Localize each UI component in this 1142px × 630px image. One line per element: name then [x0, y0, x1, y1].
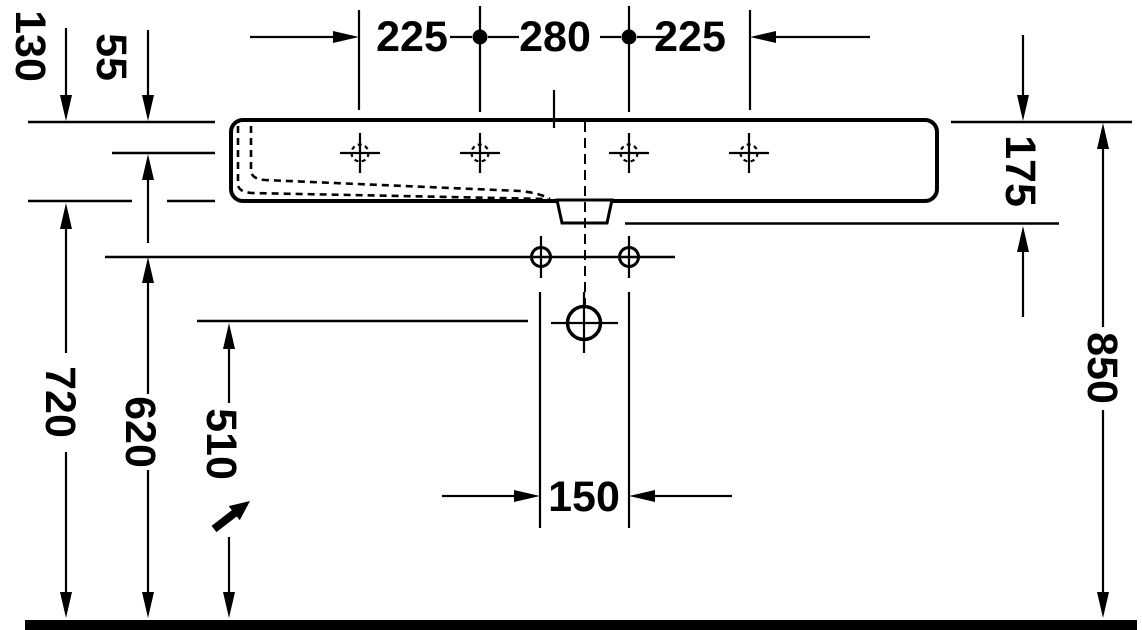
dim-label-720: 720: [36, 366, 84, 438]
dim-510: 510: [197, 323, 250, 618]
dim-label-620: 620: [116, 396, 164, 468]
dim-label-225-left: 225: [376, 13, 448, 61]
dim-label-510: 510: [197, 408, 245, 480]
dim-label-850: 850: [1078, 332, 1126, 404]
washbasin-dimension-drawing: 225 280 225 130 55 720 620 510: [0, 0, 1142, 630]
top-dimension-chain: 225 280 225: [250, 6, 870, 128]
floor-line: [25, 620, 1137, 630]
technical-drawing-page: 225 280 225 130 55 720 620 510: [0, 0, 1142, 630]
dim-label-280: 280: [519, 13, 591, 61]
arrowhead: [750, 31, 776, 43]
dim-150: 150: [442, 292, 732, 528]
dim-130-55: 130 55: [6, 10, 154, 243]
basin-section: [231, 120, 937, 308]
dim-850: 850: [1078, 123, 1126, 618]
dimension-dot-left: [473, 30, 488, 45]
dim-label-175: 175: [996, 135, 1044, 207]
dim-label-150: 150: [548, 473, 620, 521]
dimension-dot-right: [622, 30, 637, 45]
dim-label-130: 130: [6, 10, 54, 82]
dim-label-55: 55: [87, 33, 135, 81]
arrowhead: [333, 31, 359, 43]
dim-175: 175: [996, 35, 1044, 317]
dim-label-225-right: 225: [654, 13, 726, 61]
dim-720: 720: [36, 203, 84, 618]
dim-620: 620: [116, 257, 164, 618]
adjustable-arrow-shaft: [214, 512, 236, 529]
